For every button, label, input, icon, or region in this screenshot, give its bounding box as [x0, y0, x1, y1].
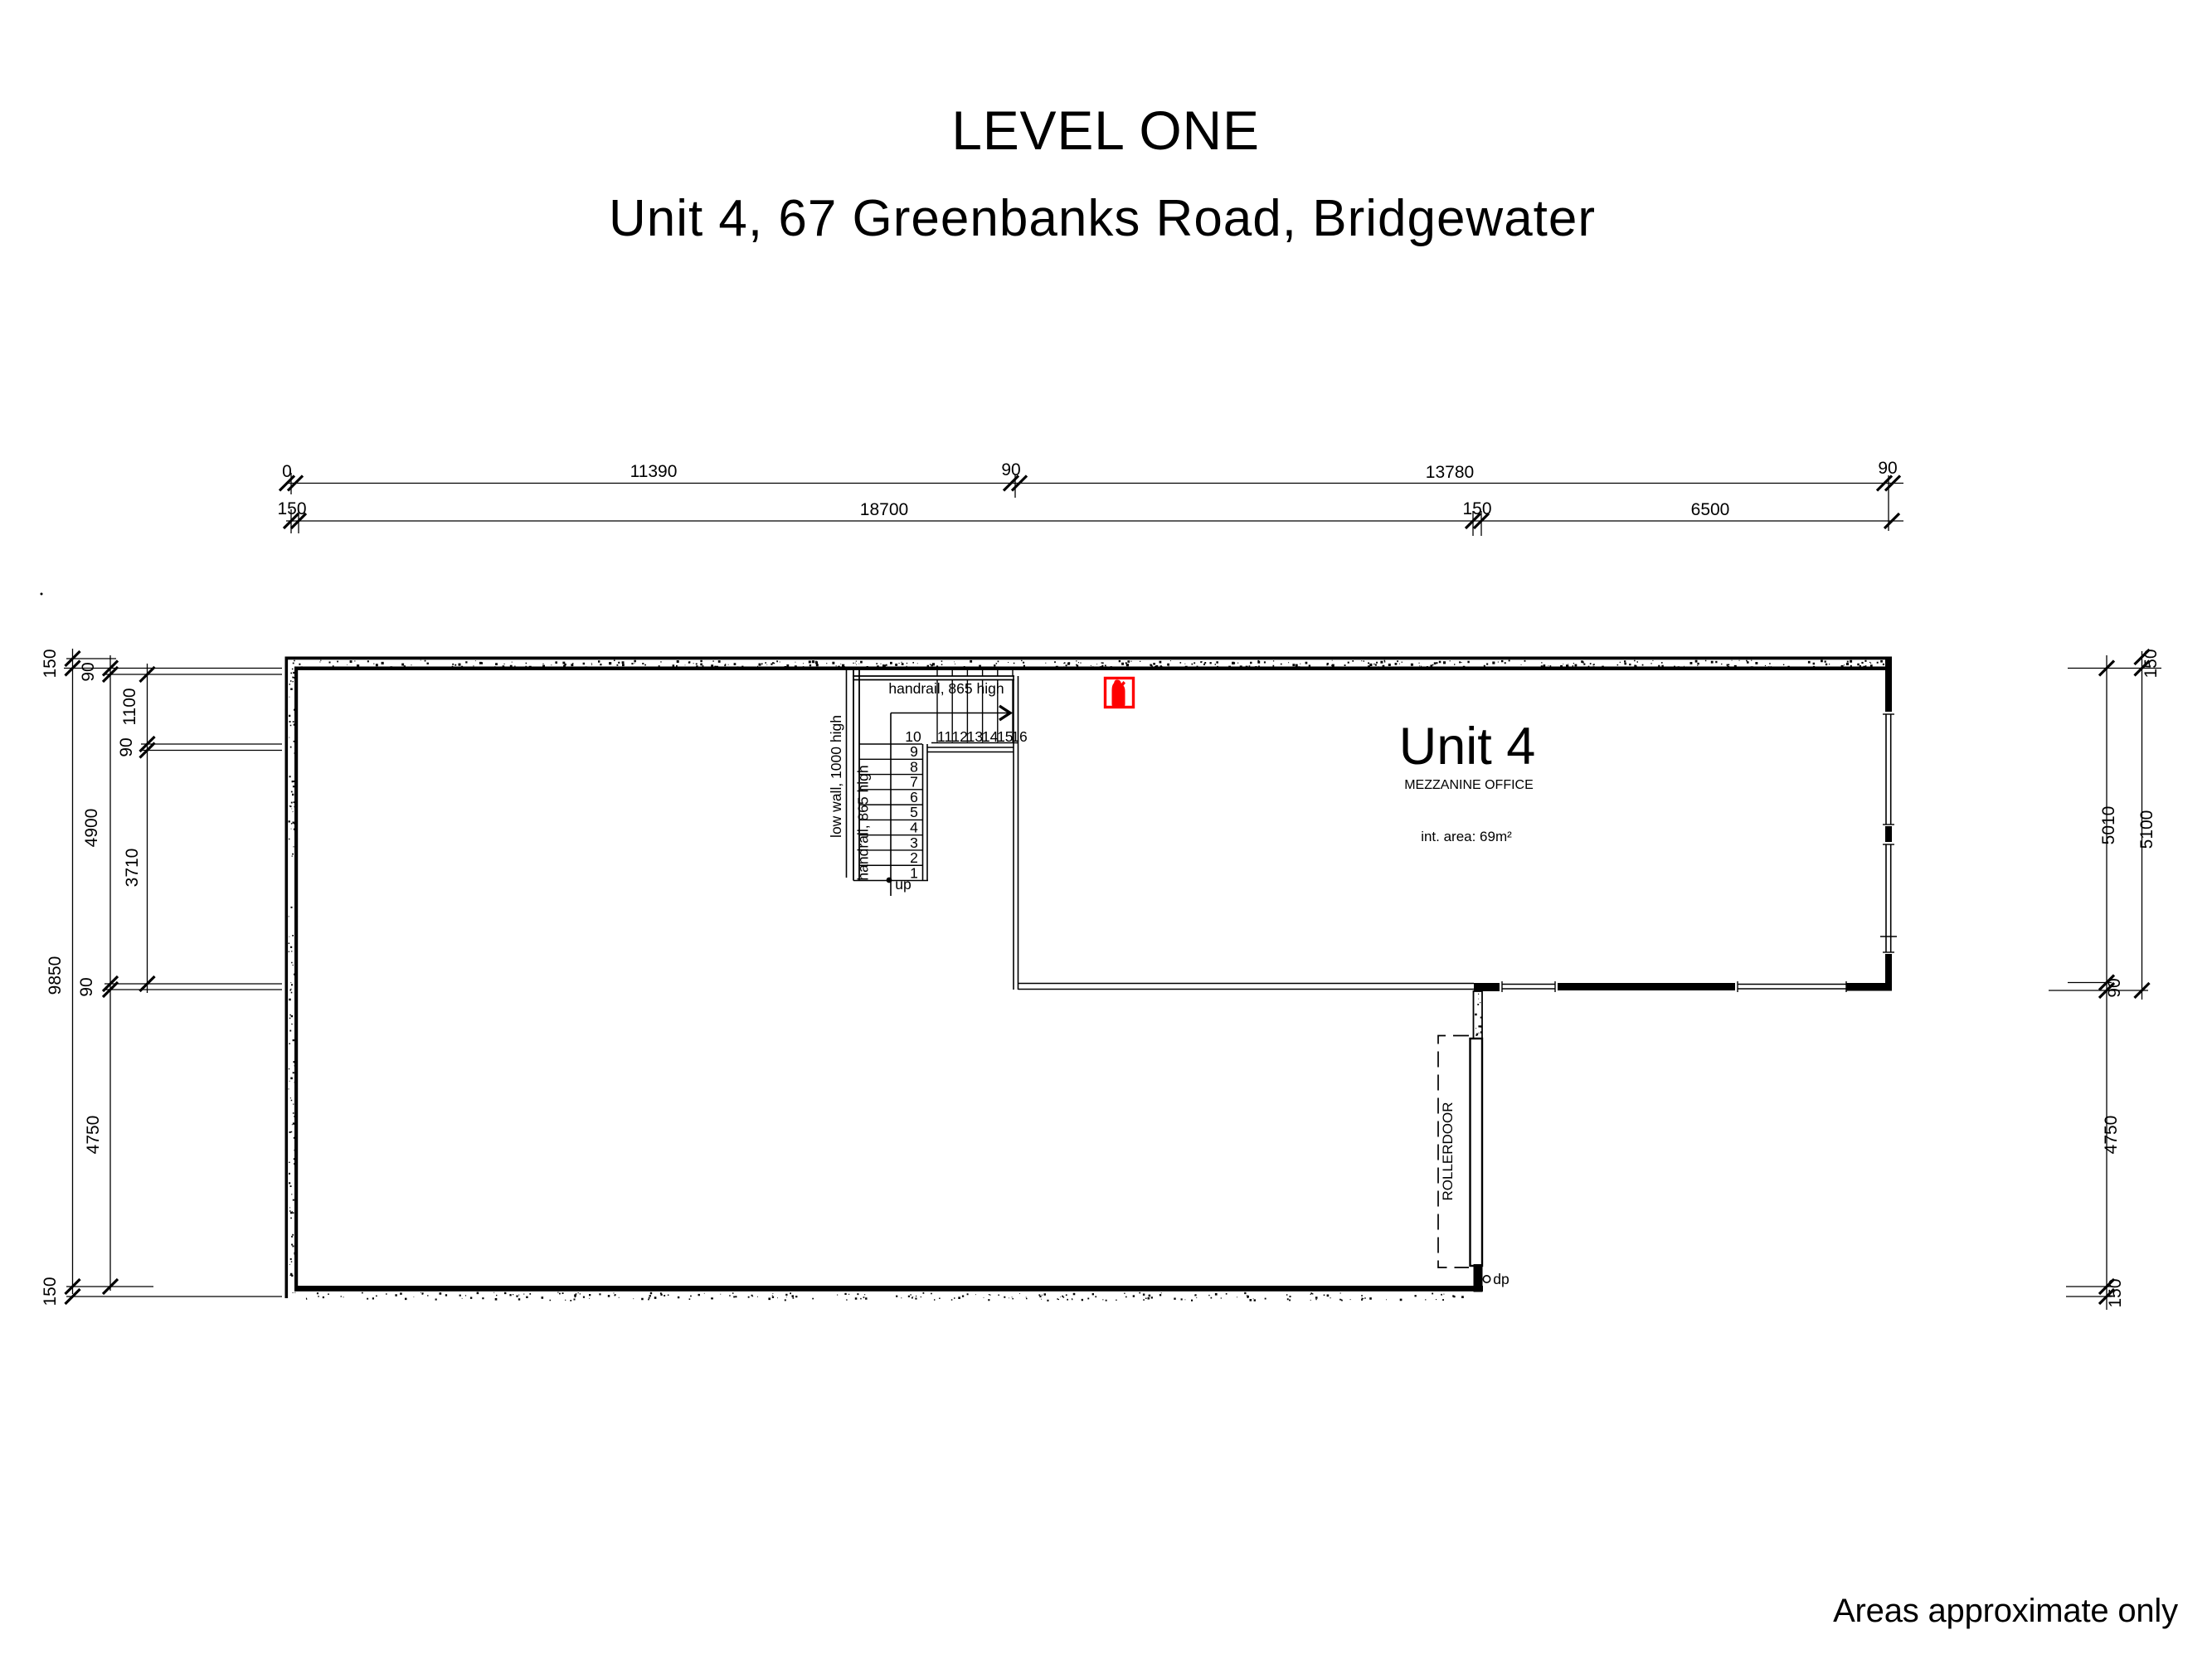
- svg-text:6500: 6500: [1691, 500, 1730, 519]
- svg-text:90: 90: [2105, 978, 2124, 997]
- svg-text:Unit 4: Unit 4: [1399, 718, 1536, 776]
- svg-text:int. area: 69m²: int. area: 69m²: [1421, 829, 1512, 844]
- svg-text:14: 14: [982, 728, 999, 745]
- svg-text:4900: 4900: [82, 809, 101, 848]
- svg-text:90: 90: [1878, 459, 1897, 478]
- svg-text:9850: 9850: [46, 956, 65, 995]
- svg-text:90: 90: [1001, 460, 1020, 479]
- svg-text:16: 16: [1011, 728, 1027, 745]
- svg-text:11: 11: [937, 728, 952, 745]
- svg-text:10: 10: [905, 728, 921, 745]
- svg-text:90: 90: [79, 662, 98, 681]
- svg-text:4750: 4750: [84, 1116, 103, 1155]
- svg-text:LEVEL ONE: LEVEL ONE: [951, 100, 1260, 161]
- svg-text:4750: 4750: [2102, 1116, 2121, 1155]
- svg-text:ROLLERDOOR: ROLLERDOOR: [1440, 1102, 1456, 1200]
- svg-text:150: 150: [1462, 499, 1491, 518]
- svg-text:7: 7: [910, 774, 918, 791]
- svg-text:5: 5: [910, 804, 918, 820]
- svg-text:13: 13: [967, 728, 983, 745]
- svg-text:dp: dp: [1493, 1271, 1509, 1287]
- svg-text:6: 6: [910, 789, 918, 805]
- svg-text:Unit 4, 67 Greenbanks Road, Br: Unit 4, 67 Greenbanks Road, Bridgewater: [609, 190, 1596, 247]
- svg-text:up: up: [895, 876, 911, 893]
- svg-text:150: 150: [2142, 649, 2161, 678]
- svg-text:1100: 1100: [120, 688, 139, 725]
- svg-text:12: 12: [951, 728, 967, 745]
- svg-text:90: 90: [117, 737, 136, 757]
- svg-text:Areas approximate only: Areas approximate only: [1833, 1593, 2178, 1629]
- svg-text:2: 2: [910, 849, 918, 866]
- svg-text:150: 150: [41, 649, 60, 678]
- svg-text:handrail, 865 high: handrail, 865 high: [888, 680, 1004, 697]
- svg-text:11390: 11390: [630, 462, 678, 481]
- svg-text:150: 150: [277, 499, 306, 518]
- svg-text:90: 90: [77, 977, 96, 996]
- svg-text:3710: 3710: [123, 849, 142, 888]
- svg-text:13780: 13780: [1426, 463, 1474, 482]
- svg-text:4: 4: [910, 820, 918, 836]
- svg-text:low wall, 1000 high: low wall, 1000 high: [828, 715, 844, 838]
- svg-text:9: 9: [910, 743, 918, 760]
- svg-text:3: 3: [910, 834, 918, 851]
- svg-text:0: 0: [282, 462, 292, 481]
- svg-text:18700: 18700: [860, 500, 908, 519]
- svg-text:150: 150: [2106, 1278, 2125, 1307]
- svg-text:150: 150: [41, 1277, 60, 1306]
- svg-text:8: 8: [910, 758, 918, 775]
- svg-text:handrail, 865 high: handrail, 865 high: [855, 765, 872, 880]
- svg-text:5010: 5010: [2099, 806, 2118, 845]
- svg-text:5100: 5100: [2137, 810, 2156, 849]
- svg-text:MEZZANINE OFFICE: MEZZANINE OFFICE: [1404, 778, 1534, 792]
